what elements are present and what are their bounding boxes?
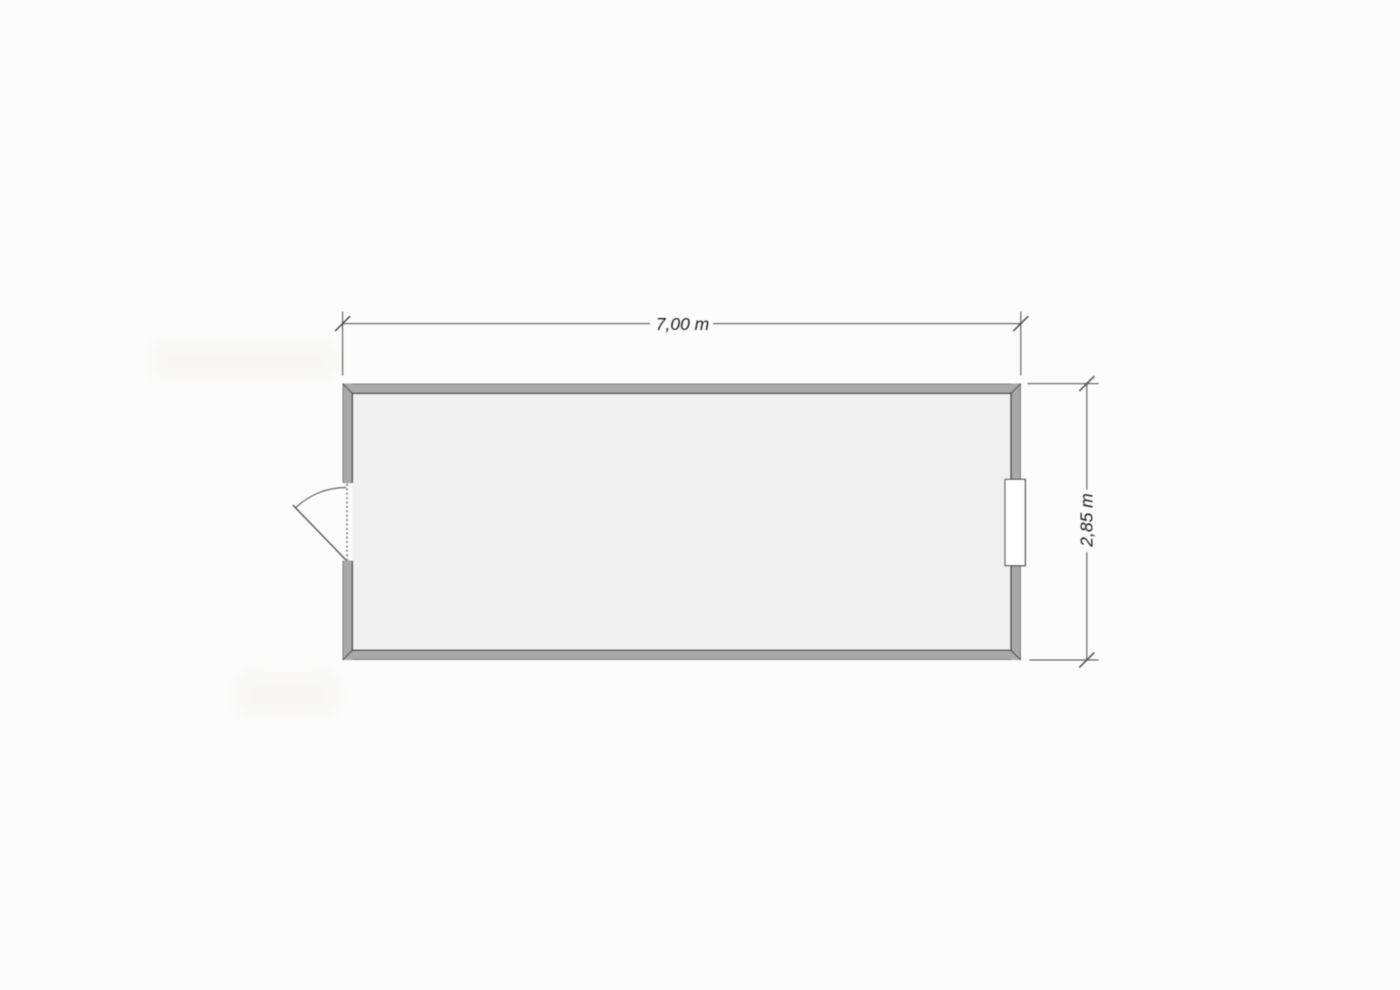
- svg-text:7,00 m: 7,00 m: [656, 314, 710, 334]
- svg-text:2,85 m: 2,85 m: [1077, 493, 1097, 548]
